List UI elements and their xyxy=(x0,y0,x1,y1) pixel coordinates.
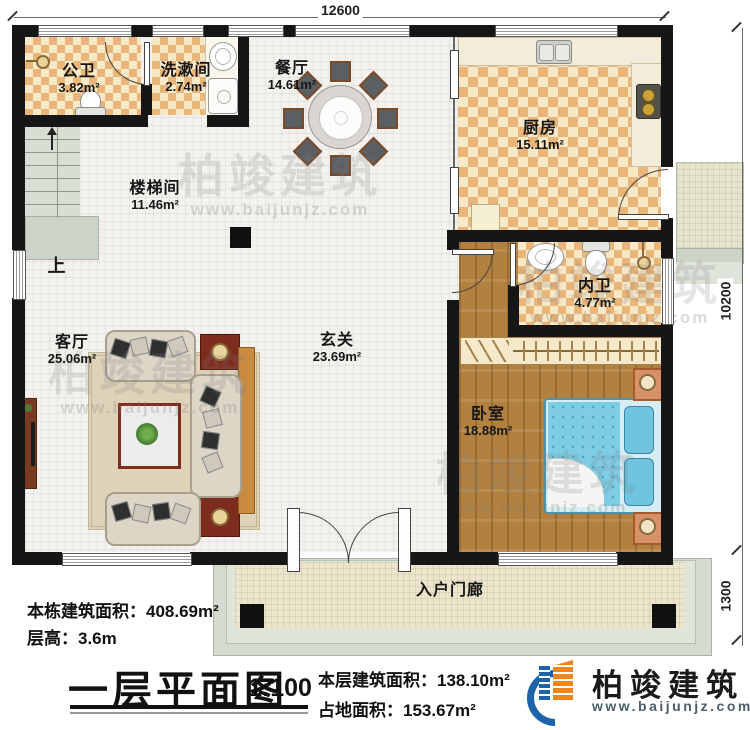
entrance-door-post xyxy=(398,508,411,572)
porch-column xyxy=(652,604,676,628)
brand-website: www.baijunjz.com xyxy=(592,698,750,714)
room-label-foyer: 玄关 23.69m² xyxy=(297,332,377,365)
cushion xyxy=(149,339,169,359)
wardrobe xyxy=(460,337,663,365)
floor-height-value: 3.6m xyxy=(78,629,117,648)
room-name: 公卫 xyxy=(44,63,114,81)
wall-segment xyxy=(12,298,25,565)
door-leaf xyxy=(618,214,669,220)
floor-area-value: 138.10m² xyxy=(437,671,510,690)
cushion xyxy=(201,431,220,450)
room-area: 15.11m² xyxy=(500,138,580,153)
building-area-label: 本栋建筑面积： xyxy=(27,602,146,621)
table-lamp xyxy=(211,508,229,526)
kitchen-appliance xyxy=(471,204,500,232)
chair xyxy=(283,108,304,129)
stair-direction-arrow xyxy=(51,133,53,150)
floor-plan-canvas: 12600 10200 1300 xyxy=(0,0,750,730)
plan-scale: 1:100 xyxy=(248,674,312,703)
wall-segment xyxy=(661,218,673,258)
room-area: 3.82m² xyxy=(44,81,114,96)
wall-segment xyxy=(190,552,287,565)
room-name: 内卫 xyxy=(555,278,635,296)
room-area: 4.77m² xyxy=(555,296,635,311)
sliding-door-leaf xyxy=(450,167,459,214)
coffee-table xyxy=(118,403,181,469)
arrow-head xyxy=(47,127,57,135)
logo-building-orange xyxy=(553,660,573,700)
wall-segment xyxy=(447,230,459,250)
wall-segment xyxy=(130,25,152,37)
dimension-top-label: 12600 xyxy=(318,2,363,18)
stove xyxy=(636,84,661,119)
ground-area-value: 153.67m² xyxy=(403,701,476,720)
dimension-line-right xyxy=(742,28,743,646)
window xyxy=(662,258,674,325)
chair xyxy=(330,155,351,176)
window xyxy=(62,553,192,566)
stair-rail xyxy=(57,127,58,218)
room-label-washroom: 洗漱间 2.74m² xyxy=(144,62,228,95)
table-lamp xyxy=(639,374,656,391)
hangers xyxy=(513,341,659,361)
sliding-door-leaf xyxy=(450,50,459,99)
chair xyxy=(377,108,398,129)
ceiling-light xyxy=(637,256,651,270)
room-label-dining: 餐厅 14.61m² xyxy=(252,60,332,93)
title-rule-thin xyxy=(70,712,308,714)
dimension-tick xyxy=(731,22,742,33)
pillow xyxy=(624,406,654,454)
window xyxy=(498,553,618,566)
room-label-living: 客厅 25.06m² xyxy=(32,334,112,367)
room-name: 玄关 xyxy=(297,332,377,350)
floor-height-note: 层高：3.6m xyxy=(27,624,117,649)
chair xyxy=(330,61,351,82)
room-area: 25.06m² xyxy=(32,352,112,367)
nightstand xyxy=(633,512,664,545)
light-cord xyxy=(642,242,644,257)
room-area: 14.61m² xyxy=(252,78,332,93)
wall-segment xyxy=(238,25,249,127)
pillow xyxy=(624,458,654,506)
window xyxy=(228,25,284,37)
room-name: 楼梯间 xyxy=(110,180,200,198)
dimension-right-lower-label: 1300 xyxy=(718,577,734,614)
wall-segment xyxy=(661,25,673,167)
kitchen-sink xyxy=(536,40,572,64)
cushion xyxy=(131,503,151,523)
wall-segment xyxy=(447,230,661,242)
room-label-public-bath: 公卫 3.82m² xyxy=(44,63,114,96)
room-name: 餐厅 xyxy=(252,60,332,78)
window xyxy=(295,25,410,37)
ground-area-label: 占地面积： xyxy=(318,701,403,720)
table-center xyxy=(334,111,348,125)
wall-segment xyxy=(661,323,673,565)
door-leaf xyxy=(452,249,494,255)
room-name: 客厅 xyxy=(32,334,112,352)
wall-segment xyxy=(25,115,148,127)
dimension-tick xyxy=(731,545,742,556)
plant xyxy=(136,423,158,445)
floor-area-label: 本层建筑面积： xyxy=(318,671,437,690)
tv xyxy=(31,422,35,466)
burner xyxy=(642,89,655,102)
side-table xyxy=(200,334,240,370)
door-leaf xyxy=(510,243,516,287)
stair-landing xyxy=(25,216,99,260)
wall-segment xyxy=(408,25,495,37)
room-area: 2.74m² xyxy=(144,80,228,95)
dimension-tick xyxy=(731,635,742,646)
nightstand xyxy=(633,368,664,401)
stairs-direction-label: 上 xyxy=(42,256,72,277)
room-area: 23.69m² xyxy=(297,350,377,365)
ground-area-note: 占地面积：153.67m² xyxy=(318,696,476,721)
table-lamp xyxy=(639,518,656,535)
wall-segment xyxy=(12,25,25,250)
table-lamp xyxy=(211,343,229,361)
side-platform xyxy=(676,162,744,250)
logo-building-blue xyxy=(539,666,550,700)
sink-basin xyxy=(555,44,570,61)
building-area-note: 本栋建筑面积：408.69m² xyxy=(27,597,219,622)
window xyxy=(13,250,26,300)
room-label-kitchen: 厨房 15.11m² xyxy=(500,120,580,153)
burner xyxy=(642,103,655,116)
dimension-right-upper-label: 10200 xyxy=(717,279,733,324)
direction-text: 上 xyxy=(42,256,72,277)
floor-height-label: 层高： xyxy=(27,629,78,648)
room-name: 入户门廊 xyxy=(370,582,530,600)
bed xyxy=(544,398,664,514)
room-label-porch: 入户门廊 xyxy=(370,582,530,600)
sink-basin xyxy=(539,44,554,61)
room-label-stairwell: 楼梯间 11.46m² xyxy=(110,180,200,213)
room-name: 洗漱间 xyxy=(144,62,228,80)
window xyxy=(152,25,204,37)
wardrobe-shelf xyxy=(465,340,509,362)
room-label-bedroom: 卧室 18.88m² xyxy=(448,406,528,439)
floor-area-note: 本层建筑面积：138.10m² xyxy=(318,666,510,691)
dimension-tick xyxy=(659,11,670,22)
column xyxy=(230,227,251,248)
title-rule-thick xyxy=(70,705,308,709)
dining-table xyxy=(308,85,372,149)
window xyxy=(38,25,132,37)
porch-column xyxy=(240,604,264,628)
dimension-tick xyxy=(7,11,18,22)
room-name: 厨房 xyxy=(500,120,580,138)
wall-segment xyxy=(12,552,62,565)
room-area: 18.88m² xyxy=(448,424,528,439)
wall-segment xyxy=(508,325,661,337)
room-name: 卧室 xyxy=(448,406,528,424)
brand-logo-icon xyxy=(527,658,585,722)
cushion xyxy=(129,336,149,356)
plant xyxy=(24,404,32,412)
room-area: 11.46m² xyxy=(110,198,200,213)
entrance-door-post xyxy=(287,508,300,572)
building-area-value: 408.69m² xyxy=(146,602,219,621)
toilet-bowl xyxy=(585,250,607,276)
side-table xyxy=(200,497,240,537)
wall-segment xyxy=(202,25,228,37)
room-label-ensuite: 内卫 4.77m² xyxy=(555,278,635,311)
window xyxy=(495,25,618,37)
cushion xyxy=(152,502,171,521)
